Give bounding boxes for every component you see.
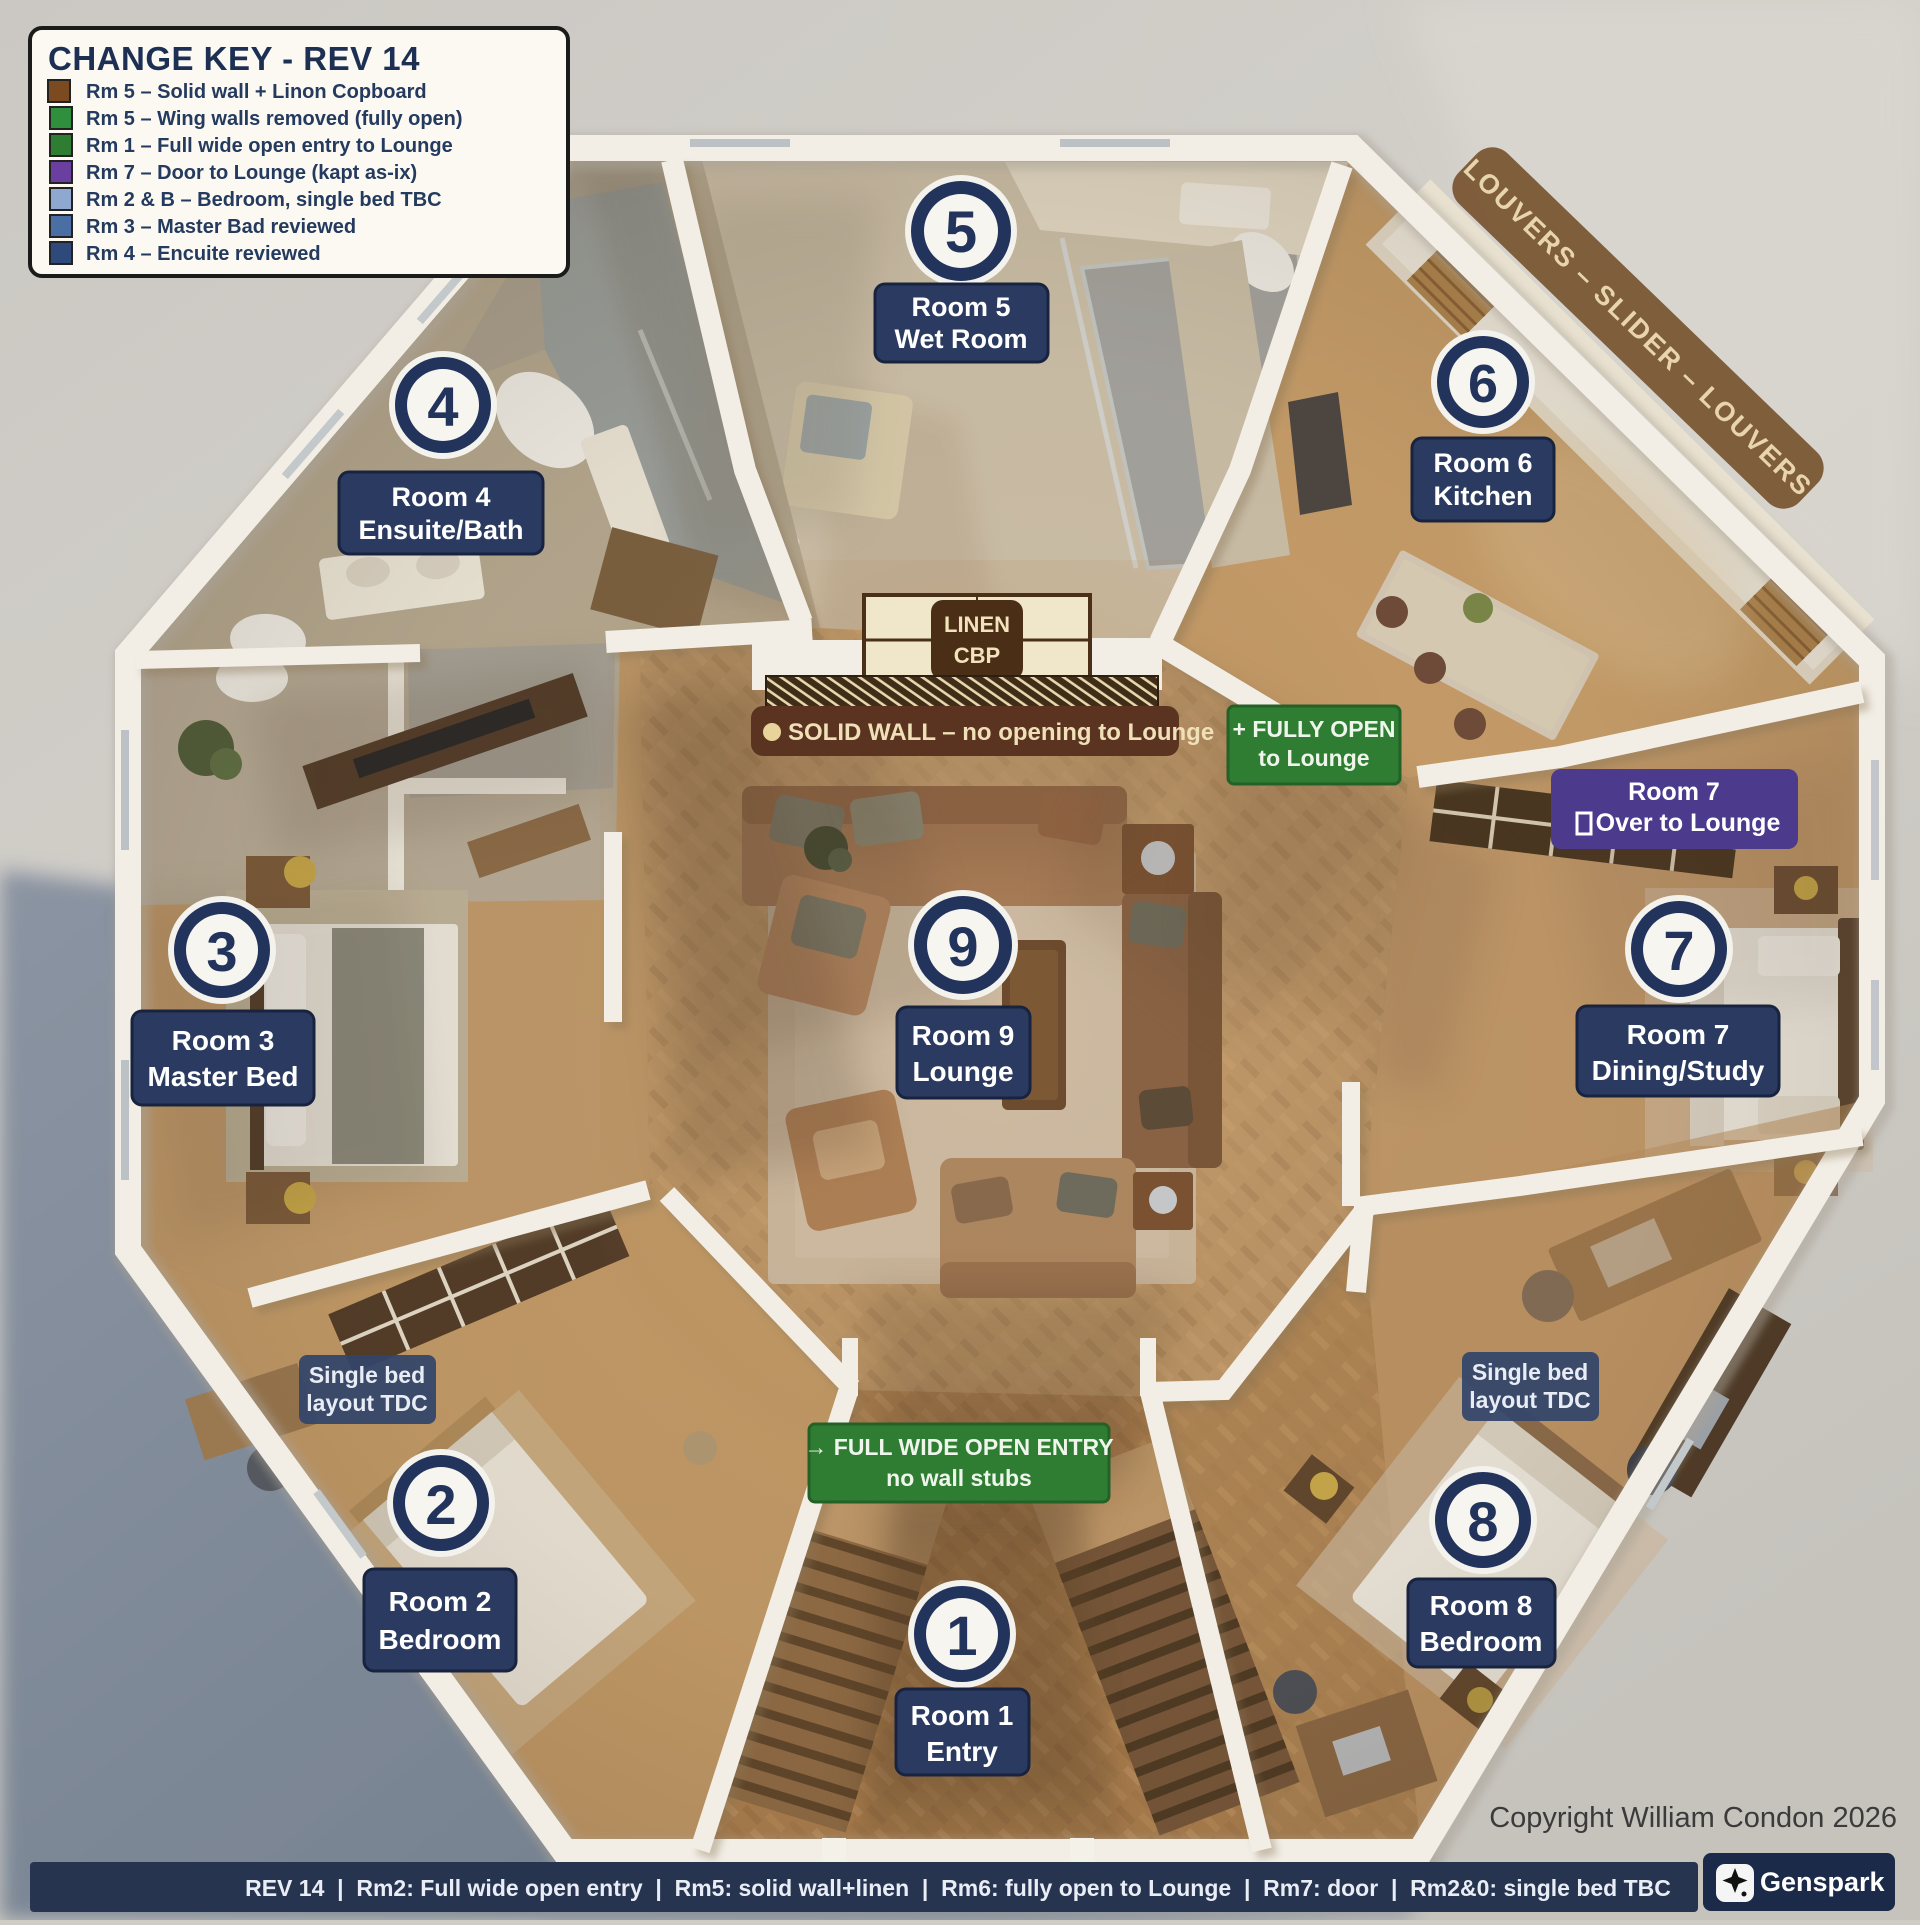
svg-text:no wall stubs: no wall stubs [886,1465,1032,1491]
svg-text:Room 2: Room 2 [389,1586,492,1617]
svg-text:Entry: Entry [926,1736,998,1767]
svg-text:Dining/Study: Dining/Study [1592,1055,1765,1086]
svg-text:3: 3 [206,920,237,983]
svg-text:CBP: CBP [954,643,1000,668]
svg-text:Single bed: Single bed [1472,1359,1588,1385]
svg-text:4: 4 [427,375,458,438]
svg-text:Copyright William Condon 2026: Copyright William Condon 2026 [1489,1802,1897,1834]
svg-text:layout TDC: layout TDC [1469,1387,1590,1413]
svg-text:Room 7: Room 7 [1627,1019,1730,1050]
svg-text:Genspark: Genspark [1760,1867,1886,1897]
svg-text:Rm 2 & B – Bedroom, single bed: Rm 2 & B – Bedroom, single bed TBC [86,189,442,211]
svg-text:6: 6 [1468,354,1498,414]
svg-text:Room 5: Room 5 [911,292,1010,322]
svg-text:Ensuite/Bath: Ensuite/Bath [358,515,523,545]
svg-text:Rm 4 – Encuite reviewed: Rm 4 – Encuite reviewed [86,243,321,265]
svg-text:Bedroom: Bedroom [1420,1626,1543,1657]
svg-text:layout TDC: layout TDC [306,1390,427,1416]
svg-text:7: 7 [1663,919,1694,982]
svg-text:Master Bed: Master Bed [148,1061,299,1092]
svg-text:Room 8: Room 8 [1430,1590,1533,1621]
svg-text:CHANGE KEY - REV 14: CHANGE KEY - REV 14 [48,40,420,77]
svg-text:Lounge: Lounge [912,1056,1013,1087]
svg-text:+ FULLY OPEN: + FULLY OPEN [1233,716,1396,742]
svg-text:Bedroom: Bedroom [379,1624,502,1655]
svg-text:Room 1: Room 1 [911,1700,1014,1731]
svg-text:1: 1 [946,1604,977,1667]
svg-text:→ FULL WIDE OPEN ENTRY: → FULL WIDE OPEN ENTRY [804,1434,1113,1460]
svg-text:Rm 7 – Door to Lounge (kapt a: Rm 7 – Door to Lounge (kapt as-ix) [86,162,417,184]
svg-text:Wet Room: Wet Room [895,324,1028,354]
svg-text:9: 9 [947,915,978,978]
svg-text:8: 8 [1467,1490,1498,1553]
svg-text:Kitchen: Kitchen [1433,481,1532,511]
svg-text:Room 3: Room 3 [172,1025,275,1056]
svg-text:Rm 1 – Full wide open entry t: Rm 1 – Full wide open entry to Lounge [86,135,453,157]
svg-text:2: 2 [425,1473,456,1536]
svg-text:Single bed: Single bed [309,1362,425,1388]
svg-text:Over to Lounge: Over to Lounge [1596,809,1781,837]
svg-text:Room 6: Room 6 [1433,448,1532,478]
svg-text:Room 4: Room 4 [391,482,490,512]
svg-text:SOLID WALL – no opening to Lou: SOLID WALL – no opening to Lounge [788,719,1214,746]
svg-text:REV 14 | Rm2: Full wide open: REV 14 | Rm2: Full wide open entry | Rm5… [245,1875,1671,1901]
svg-text:Room 7: Room 7 [1628,778,1720,806]
svg-text:Rm 5 – Wing walls removed (fu: Rm 5 – Wing walls removed (fully open) [86,108,463,130]
svg-text:LINEN: LINEN [944,612,1010,637]
svg-text:Room 9: Room 9 [912,1020,1015,1051]
svg-text:5: 5 [945,200,977,265]
svg-text:Rm 5 – Solid wall + Linon Cop: Rm 5 – Solid wall + Linon Copboard [86,81,427,103]
svg-text:to Lounge: to Lounge [1258,745,1369,771]
svg-text:Rm 3 – Master Bad reviewed: Rm 3 – Master Bad reviewed [86,216,356,238]
